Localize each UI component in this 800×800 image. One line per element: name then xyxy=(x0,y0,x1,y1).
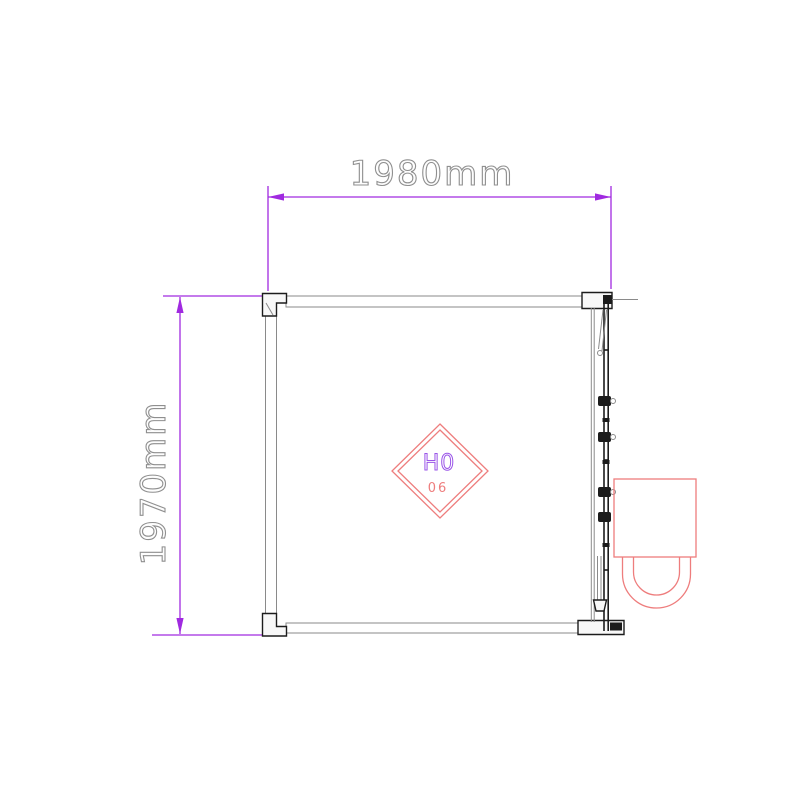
shackle-outer xyxy=(623,557,691,609)
latch-keeper xyxy=(598,396,611,406)
corner-fitting-bottom-left xyxy=(263,614,287,637)
corner-casting xyxy=(263,294,287,317)
arrowhead-up-icon xyxy=(176,297,183,313)
top-wall xyxy=(286,296,600,307)
door-edge xyxy=(591,300,608,632)
corner-casting xyxy=(263,614,287,637)
latch-keeper xyxy=(598,487,611,497)
latch-pin xyxy=(611,399,616,404)
latch-keeper xyxy=(598,432,611,442)
door-hardware xyxy=(598,396,616,547)
bottom-wall xyxy=(286,623,600,633)
corner-fitting-top-right xyxy=(582,293,638,309)
lock-rod xyxy=(599,310,604,349)
arrowhead-right-icon xyxy=(595,193,611,200)
latch-pin xyxy=(611,490,616,495)
latch-tick xyxy=(603,460,610,464)
height-dimension: 1970mm xyxy=(134,296,272,635)
technical-drawing-page: 1980mm 1970mm xyxy=(0,0,800,800)
rod-foot xyxy=(594,600,607,611)
center-diamond-mark: H0 06 xyxy=(392,424,488,518)
lock-symbol xyxy=(614,479,696,608)
latch-tick xyxy=(603,418,610,422)
shackle-inner xyxy=(634,557,680,596)
width-dimension-label: 1980mm xyxy=(350,154,515,194)
corner-fitting-bottom-right xyxy=(578,621,624,635)
diamond-number-label: 06 xyxy=(428,481,449,496)
arrowhead-down-icon xyxy=(176,618,183,634)
latch-tick xyxy=(603,543,610,547)
height-dimension-label: 1970mm xyxy=(134,401,174,566)
latch-keeper xyxy=(598,512,611,522)
hinge-block xyxy=(610,623,622,631)
drawing-canvas: 1980mm 1970mm xyxy=(0,0,800,800)
diamond-code-label: H0 xyxy=(423,451,456,476)
left-wall xyxy=(266,315,277,615)
arrowhead-left-icon xyxy=(268,193,284,200)
corner-fitting-top-left xyxy=(263,294,287,317)
hatched-body xyxy=(614,479,696,557)
latch-pin xyxy=(611,435,616,440)
rod-hook xyxy=(598,351,603,356)
width-dimension: 1980mm xyxy=(268,154,611,291)
